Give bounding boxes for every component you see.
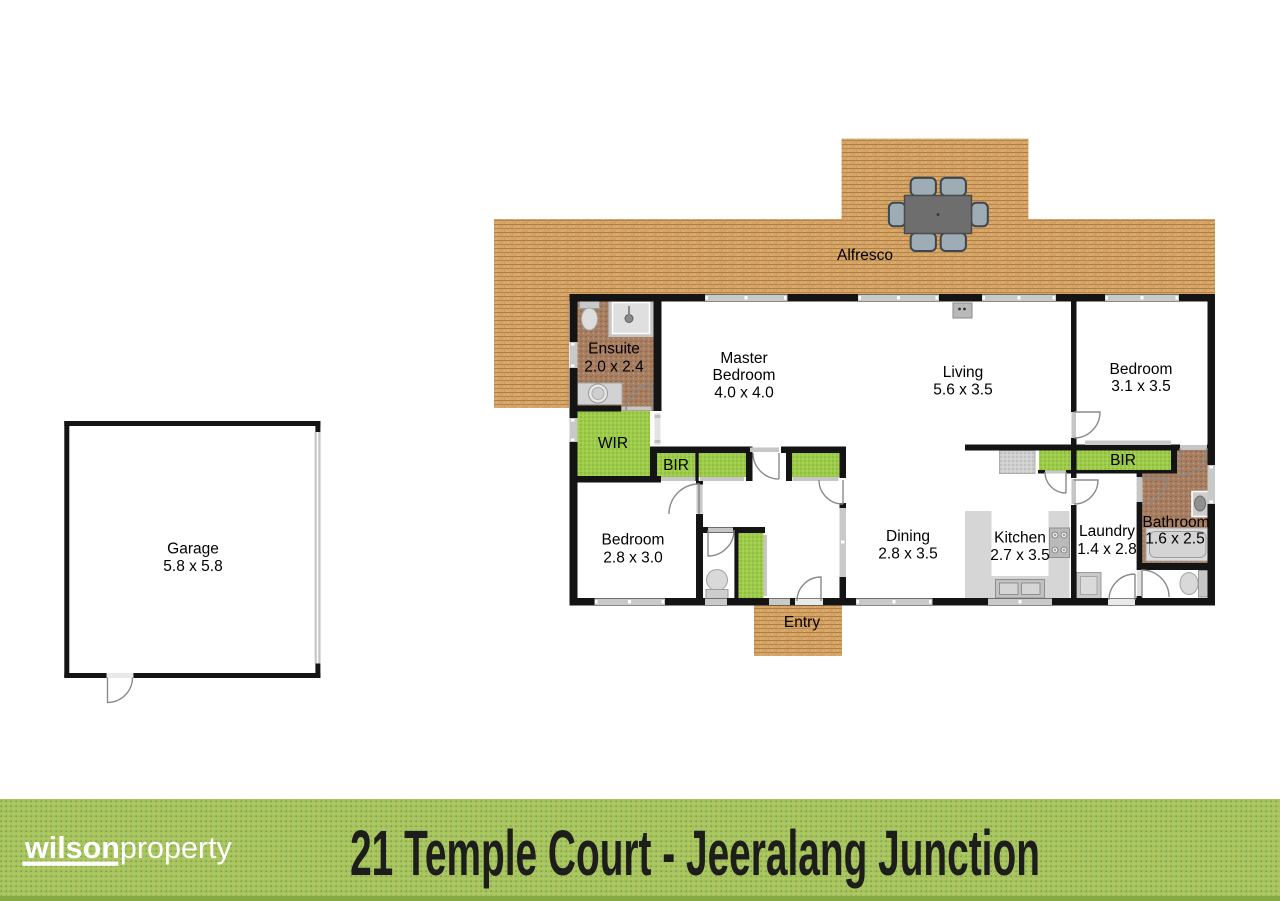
svg-text:2.8 x 3.0: 2.8 x 3.0 xyxy=(603,550,663,567)
svg-text:Bedroom: Bedroom xyxy=(1110,361,1173,378)
svg-text:Alfresco: Alfresco xyxy=(837,247,893,264)
svg-text:1.4 x 2.8: 1.4 x 2.8 xyxy=(1077,541,1136,558)
svg-text:Bedroom: Bedroom xyxy=(602,532,665,549)
svg-text:BIR: BIR xyxy=(1110,452,1136,469)
svg-text:2.7 x 3.5: 2.7 x 3.5 xyxy=(990,547,1049,564)
svg-text:21 Temple Court - Jeeralang Ju: 21 Temple Court - Jeeralang Junction xyxy=(350,818,1040,889)
svg-text:Master: Master xyxy=(720,350,767,367)
svg-text:Dining: Dining xyxy=(886,528,930,545)
svg-text:Living: Living xyxy=(943,364,984,381)
svg-text:3.1 x 3.5: 3.1 x 3.5 xyxy=(1111,378,1170,395)
svg-text:5.6 x 3.5: 5.6 x 3.5 xyxy=(933,382,992,399)
svg-text:Entry: Entry xyxy=(784,614,820,631)
svg-text:BIR: BIR xyxy=(663,457,689,474)
svg-text:Bedroom: Bedroom xyxy=(713,367,776,384)
svg-text:WIR: WIR xyxy=(598,435,628,452)
svg-text:wilsonproperty: wilsonproperty xyxy=(24,831,233,865)
svg-text:4.0 x 4.0: 4.0 x 4.0 xyxy=(714,385,774,402)
svg-text:Laundry: Laundry xyxy=(1079,523,1135,540)
svg-text:2.0 x 2.4: 2.0 x 2.4 xyxy=(584,359,644,376)
svg-text:Bathroom: Bathroom xyxy=(1142,514,1209,531)
svg-text:Kitchen: Kitchen xyxy=(994,530,1046,547)
svg-text:2.8 x 3.5: 2.8 x 3.5 xyxy=(878,546,937,563)
svg-text:Ensuite: Ensuite xyxy=(588,341,640,358)
svg-text:Garage: Garage xyxy=(167,541,219,558)
svg-text:5.8 x 5.8: 5.8 x 5.8 xyxy=(163,558,222,575)
svg-text:1.6 x 2.5: 1.6 x 2.5 xyxy=(1145,531,1204,548)
